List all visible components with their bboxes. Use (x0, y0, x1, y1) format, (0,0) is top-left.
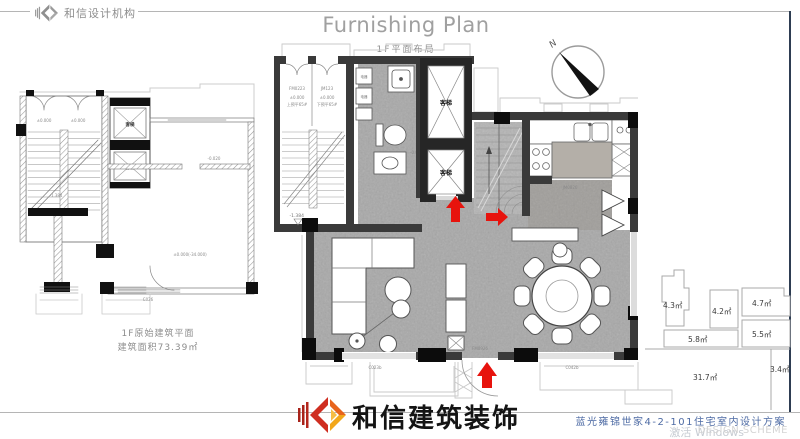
door-label-right: JM123 (320, 86, 334, 91)
left-level-zero-1: ±0.000 (37, 118, 52, 123)
tv-cabinet (446, 264, 466, 350)
elevator-2-label: 客梯 (439, 169, 452, 177)
floor-plan-canvas: ±0.000 ±0.000 客梯 客梯 (0, 0, 800, 439)
left-window-label: C026 (143, 297, 154, 302)
caption-line-2: 建筑面积73.39㎡ (58, 341, 258, 355)
area-label-3: 5.8㎡ (688, 335, 708, 344)
watermark-scheme: DESIGN SCHEME (698, 425, 788, 436)
dining-set (514, 248, 610, 344)
original-floor-plan: ±0.000 ±0.000 客梯 客梯 (16, 84, 258, 314)
hall-level-left: ±0.000 (290, 95, 305, 100)
entry-door-arc (462, 360, 498, 396)
console-table (512, 228, 578, 241)
footer-brand-logo (298, 392, 348, 439)
footer-brand-name: 和信建筑装饰 (352, 398, 520, 435)
kitchen-island (552, 142, 612, 178)
north-compass: N (548, 38, 604, 98)
area-label-0: 4.3㎡ (663, 301, 683, 310)
window-right-label: C042b (566, 365, 579, 370)
arrow-up-entry (477, 362, 497, 388)
area-label-1: 4.2㎡ (712, 307, 732, 316)
furnished-floor-plan: FM0223 JM123 ±0.000 ±0.000 上预平65# 下预平65# (274, 44, 672, 404)
hall-note-down: 下预平65# (317, 101, 338, 107)
area-label-6: 3.4㎡ (770, 365, 790, 374)
area-key-plan: 4.3㎡ 4.2㎡ 4.7㎡ 5.8㎡ 5.5㎡ 31.7㎡ 3.4㎡ (645, 270, 790, 410)
folding-door-leaf-1 (602, 190, 624, 212)
appliance-label-1: 电器 (361, 74, 369, 79)
area-label-4: 5.5㎡ (752, 330, 772, 339)
brand-logo-color-icon (298, 392, 348, 438)
area-label-2: 4.7㎡ (752, 299, 772, 308)
presentation-board: 和信设计机构 Furnishing Plan 1F平面布局 (0, 0, 800, 439)
left-level-b: ±0.000(-34.000) (173, 252, 207, 257)
elevators: 客梯 客梯 (420, 58, 472, 202)
area-label-5: 31.7㎡ (693, 373, 718, 382)
window-left-label: C023b (369, 365, 382, 370)
stool (553, 243, 567, 257)
appliance-label-2: 电器 (361, 94, 369, 99)
hall-level-right: ±0.000 (320, 95, 335, 100)
elevator-1-label: 客梯 (439, 99, 452, 107)
left-level-c: -0.020 (208, 156, 221, 161)
north-label: N (548, 38, 560, 50)
left-level-zero-2: ±0.000 (71, 118, 86, 123)
public-stair-hall: FM0223 JM123 ±0.000 ±0.000 上预平65# 下预平65# (282, 64, 345, 208)
left-elevator-1-label: 客梯 (126, 121, 135, 128)
caption-line-1: 1F原始建筑平面 (58, 327, 258, 341)
left-plan-caption: 1F原始建筑平面 建筑面积73.39㎡ (58, 327, 258, 355)
door-label-left: FM0223 (289, 86, 305, 91)
hall-note-up: 上预平65# (287, 101, 308, 107)
kitchen-door-label: JM0826 (562, 185, 578, 190)
living-level-label: -1.384 (289, 213, 304, 219)
entry-door-label: FM0926 (472, 346, 488, 351)
left-level-a: -1.384 (50, 193, 63, 198)
watermark: 激活 Windows DESIGN SCHEME (568, 424, 788, 439)
